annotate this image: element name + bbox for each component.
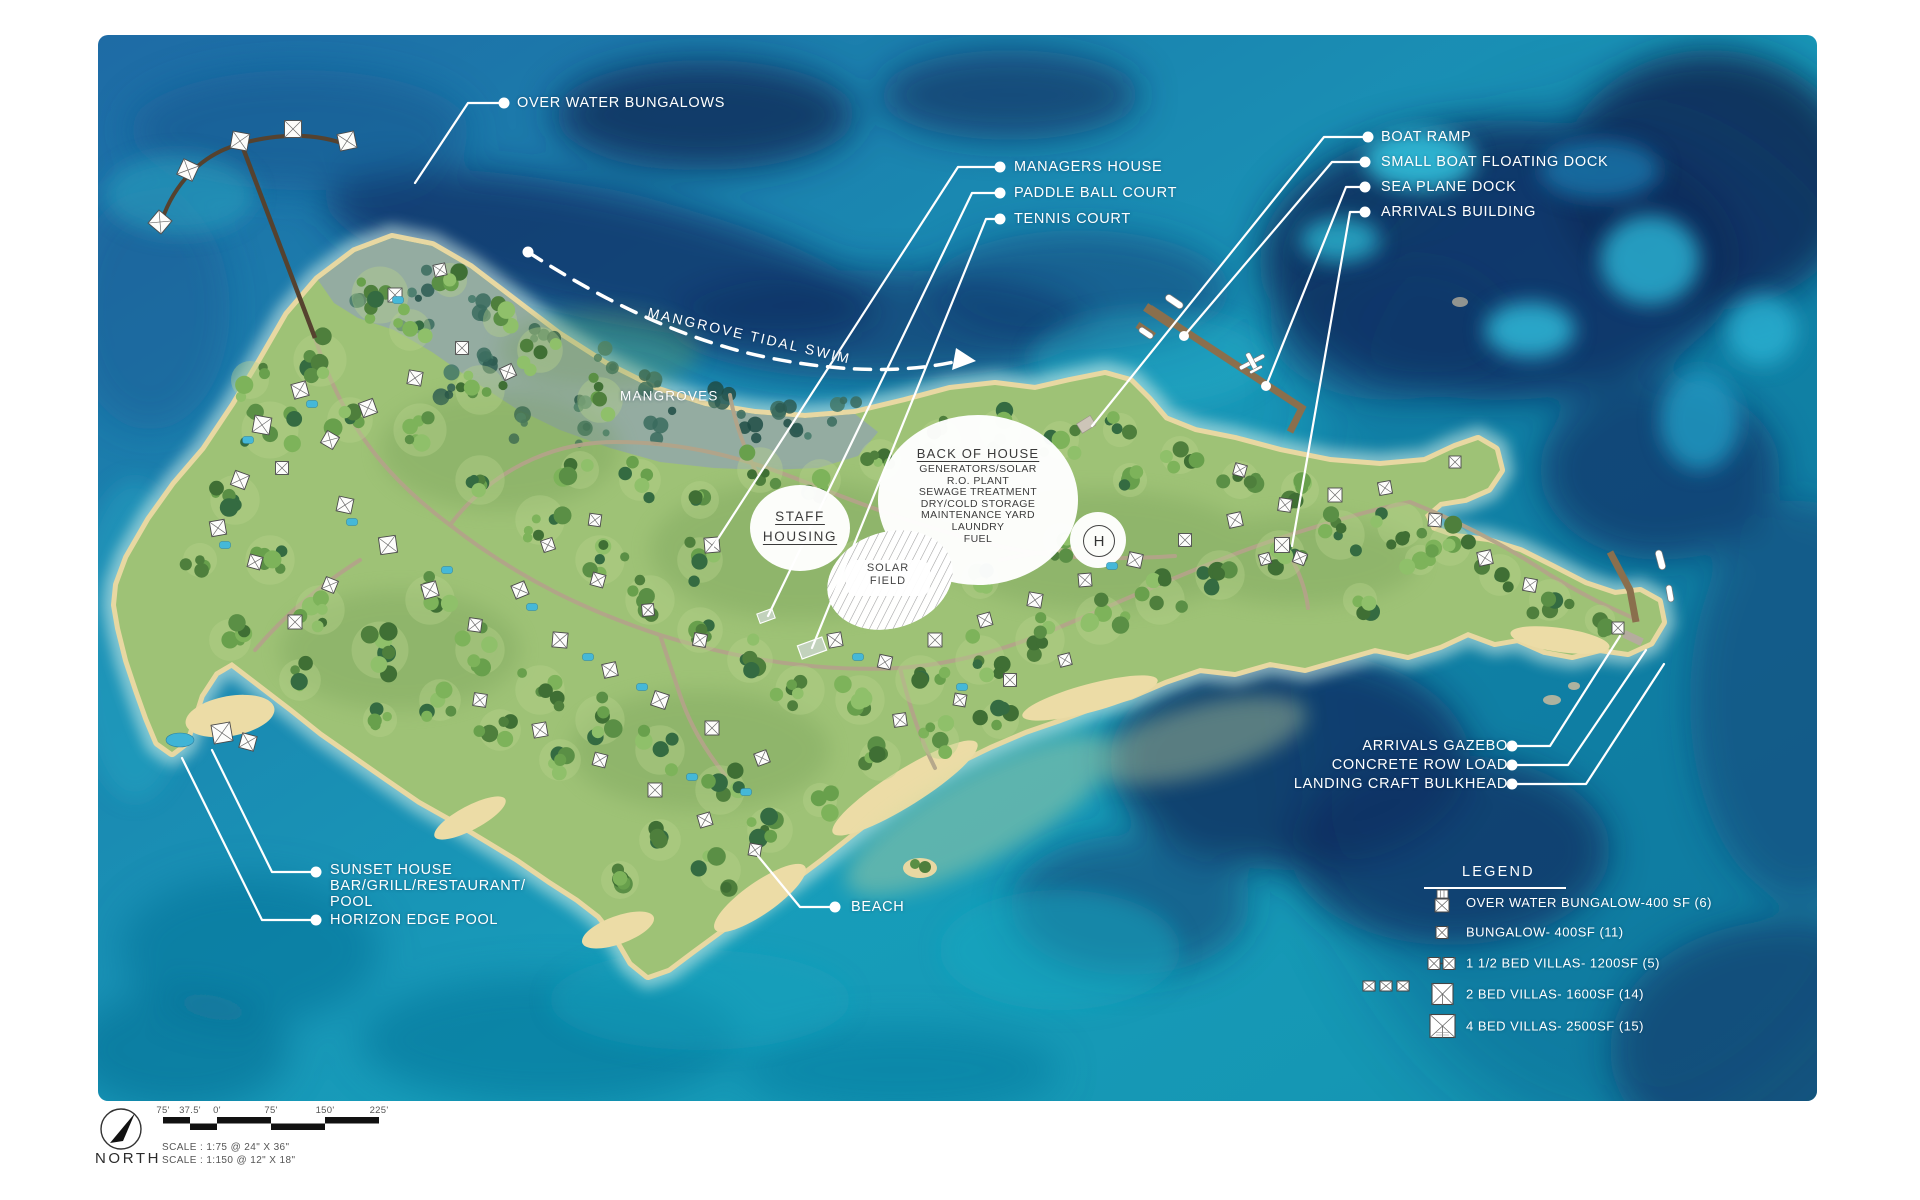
bungalow-icon [1418, 925, 1466, 939]
two-bed-villa-icon [1418, 983, 1466, 1006]
label-tennis-court: TENNIS COURT [1014, 211, 1131, 227]
label-boat-ramp: BOAT RAMP [1381, 129, 1471, 145]
legend-row-two-bed-villas: 2 BED VILLAS- 1600SF (14) [1418, 983, 1644, 1006]
helipad-marker: H [1083, 525, 1115, 557]
label-mangroves: MANGROVES [620, 389, 719, 404]
label-arrivals-building: ARRIVALS BUILDING [1381, 204, 1536, 220]
label-beach: BEACH [851, 899, 904, 915]
label-sunset-house: SUNSET HOUSE BAR/GRILL/RESTAURANT/ POOL [330, 862, 526, 910]
scale-bar-ticks: 75' 37.5' 0' 75' 150' 225' [160, 1105, 390, 1115]
label-paddle-ball-court: PADDLE BALL COURT [1014, 185, 1177, 201]
label-back-of-house: BACK OF HOUSE GENERATORS/SOLAR R.O. PLAN… [868, 446, 1088, 545]
label-small-boat-floating-dock: SMALL BOAT FLOATING DOCK [1381, 154, 1608, 170]
north-label: NORTH [95, 1150, 161, 1167]
label-sea-plane-dock: SEA PLANE DOCK [1381, 179, 1517, 195]
scale-bar [160, 1117, 390, 1133]
legend-row-bungalow: BUNGALOW- 400SF (11) [1418, 925, 1624, 940]
four-bed-villa-icon [1418, 1014, 1466, 1039]
label-solar-field: SOLAR FIELD [838, 562, 938, 588]
legend-title: LEGEND [1462, 864, 1535, 880]
legend-row-four-bed-villas: 4 BED VILLAS- 2500SF (15) [1418, 1014, 1644, 1039]
one-and-half-bed-villa-icon [1418, 956, 1466, 970]
scale-note-1: SCALE : 1:75 @ 24" X 36" [162, 1142, 289, 1153]
island-resort-site-plan: OVER WATER BUNGALOWS MANAGERS HOUSE PADD… [0, 0, 1920, 1200]
label-arrivals-gazebo: ARRIVALS GAZEBO [1362, 738, 1508, 754]
north-arrow-icon [98, 1106, 144, 1152]
over-water-bungalow-icon [1418, 889, 1466, 915]
label-staff-housing: STAFF HOUSING [740, 507, 860, 547]
label-managers-house: MANAGERS HOUSE [1014, 159, 1162, 175]
label-horizon-edge-pool: HORIZON EDGE POOL [330, 912, 498, 928]
legend-row-one-and-half-bed-villas: 1 1/2 BED VILLAS- 1200SF (5) [1418, 956, 1660, 971]
villa-icon-cluster [1362, 980, 1410, 992]
label-concrete-row-load: CONCRETE ROW LOAD [1332, 757, 1508, 773]
legend-row-over-water-bungalow: OVER WATER BUNGALOW-400 SF (6) [1418, 889, 1712, 915]
scale-note-2: SCALE : 1:150 @ 12" X 18" [162, 1155, 295, 1166]
label-landing-craft-bulkhead: LANDING CRAFT BULKHEAD [1294, 776, 1508, 792]
label-over-water-bungalows: OVER WATER BUNGALOWS [517, 95, 725, 111]
